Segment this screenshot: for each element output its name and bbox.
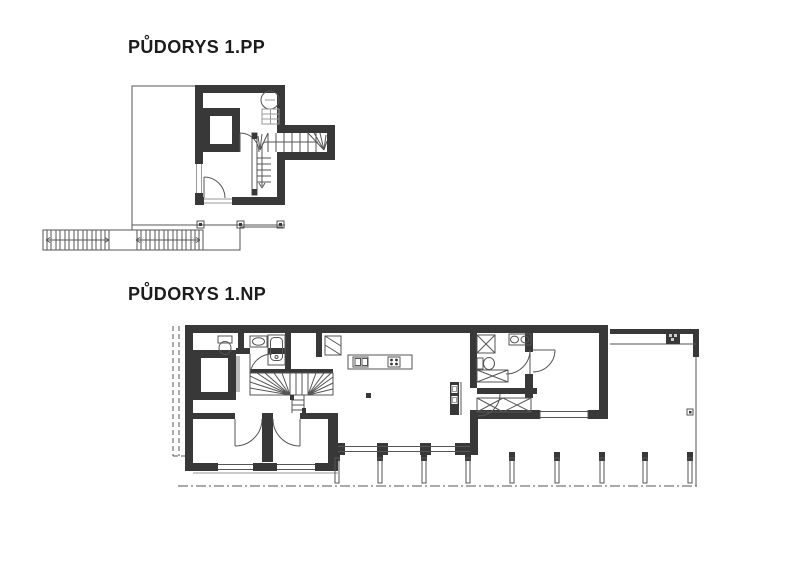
- kitchen-sink: [353, 357, 368, 367]
- terrace-post: [509, 452, 515, 483]
- gate-post: [687, 409, 693, 415]
- storage-room: [202, 108, 259, 152]
- drawing-sheet: PŮDORYS 1.PP PŮDORYS 1.NP: [0, 0, 800, 565]
- water-heater: [262, 109, 279, 124]
- shower: [477, 335, 495, 353]
- hall-window: [540, 410, 588, 419]
- terrace-posts: [334, 452, 693, 483]
- storage-door-slab: [236, 356, 240, 392]
- basement-window: [195, 161, 203, 196]
- laundry-closet: [477, 370, 508, 382]
- wc-toilet-2: [477, 358, 495, 370]
- boiler: [261, 91, 279, 109]
- carport: [610, 331, 696, 486]
- exterior-stairs: [43, 227, 283, 250]
- pergola-column: [666, 331, 680, 344]
- terrace-post: [599, 452, 605, 483]
- terrace-post: [421, 452, 427, 483]
- entry-door: [204, 177, 232, 205]
- cooktop: [388, 357, 400, 367]
- terrace-post: [642, 452, 648, 483]
- basement-plan: [43, 85, 335, 250]
- east-bath-door: [506, 350, 530, 374]
- kitchen-island: [348, 355, 412, 369]
- terrace-post: [554, 452, 560, 483]
- master-bedroom-door: [533, 350, 555, 372]
- terrace-post: [687, 452, 693, 483]
- hall-wardrobe: [477, 398, 531, 412]
- floor-plans-canvas: [0, 0, 800, 565]
- winder-staircase: [252, 133, 327, 195]
- wardrobe: [325, 336, 341, 355]
- storage-room: [193, 350, 240, 400]
- ground-floor-plan: [173, 325, 699, 486]
- terrace-post: [465, 452, 471, 483]
- terrace-post: [377, 452, 383, 483]
- stair-step-outline: [203, 227, 283, 250]
- glass-facade: [338, 447, 470, 452]
- washbasin: [250, 336, 267, 347]
- winder-staircase: [250, 373, 333, 413]
